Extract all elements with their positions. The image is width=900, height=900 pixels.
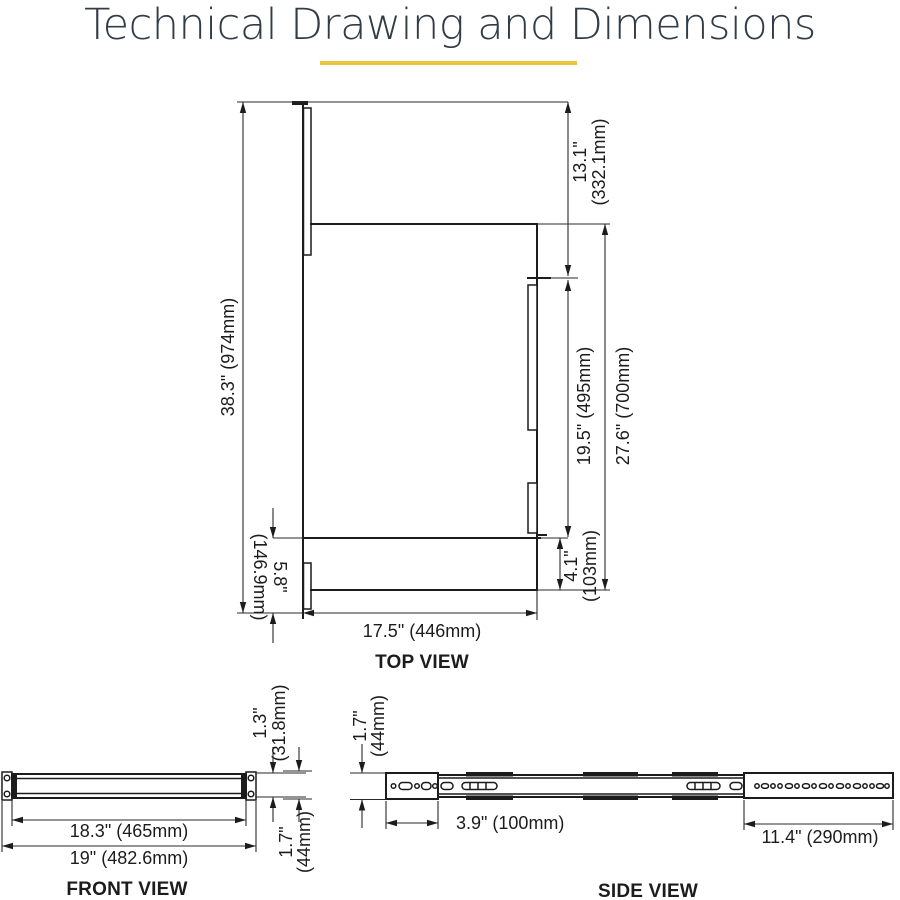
top-view: 38.3" (974mm) 13.1" (332.1mm) 19.5" (495… xyxy=(218,101,633,673)
side-view: 1.7" (44mm) 3.9" (100mm) 11.4" (290mm) S… xyxy=(350,695,893,900)
dim-front-gap-in: 5.8" xyxy=(270,561,290,592)
dim-overall-depth: 38.3" (974mm) xyxy=(218,298,238,416)
top-view-part-outline xyxy=(292,101,550,618)
front-view: 1.3" (31.8mm) 1.7" (44mm) 18.3" (465mm) … xyxy=(2,684,314,900)
top-view-dimensions xyxy=(237,102,610,643)
dim-flange-mm: (31.8mm) xyxy=(269,684,289,761)
rail-band-slots xyxy=(441,783,742,790)
left-ear-hole-top xyxy=(4,775,10,781)
top-view-label: TOP VIEW xyxy=(375,652,469,673)
dim-front-height-in: 1.7" xyxy=(276,826,296,857)
rail-band-dark-segments xyxy=(466,772,718,800)
dim-rail-length: 11.4" (290mm) xyxy=(761,827,878,847)
technical-drawing-page: Technical Drawing and Dimensions xyxy=(0,0,900,900)
front-panel xyxy=(12,774,246,798)
top-view-arrowheads xyxy=(240,102,608,624)
side-left-bracket-holes xyxy=(391,783,437,790)
dim-rear-gap-mm: (103mm) xyxy=(580,530,600,602)
dim-side-height-in: 1.7" xyxy=(350,710,370,741)
side-view-part-outline xyxy=(386,772,893,800)
dim-side-height-mm: (44mm) xyxy=(368,695,388,757)
front-view-label: FRONT VIEW xyxy=(66,879,187,900)
dim-body-width: 18.3" (465mm) xyxy=(70,821,188,841)
drawing-canvas: 38.3" (974mm) 13.1" (332.1mm) 19.5" (495… xyxy=(0,0,900,900)
left-ear-hole-bottom xyxy=(4,791,10,797)
dim-flange-in: 1.3" xyxy=(250,707,270,738)
dim-extension-mm: (332.1mm) xyxy=(589,118,609,205)
dim-top-width: 17.5" (446mm) xyxy=(363,621,481,641)
right-rail-slot-long xyxy=(528,285,537,430)
dim-rear-gap-in: 4.1" xyxy=(561,550,581,581)
side-view-label: SIDE VIEW xyxy=(598,881,698,900)
right-ear-hole-bottom xyxy=(248,791,254,797)
side-right-rail-holes xyxy=(755,784,889,789)
dim-overall-width: 19" (482.6mm) xyxy=(70,848,188,868)
dim-extension-in: 13.1" xyxy=(570,141,590,182)
dim-total-depth: 27.6" (700mm) xyxy=(613,347,633,465)
front-view-part-outline xyxy=(2,772,256,800)
dim-shelf-depth: 19.5" (495mm) xyxy=(574,347,594,465)
left-slide-bracket-upper xyxy=(304,108,312,255)
dim-front-gap-mm: (146.9mm) xyxy=(250,533,270,620)
right-ear-hole-top xyxy=(248,775,254,781)
right-rail-slot-short xyxy=(528,483,537,533)
dim-bracket-length: 3.9" (100mm) xyxy=(456,813,564,833)
left-slide-bracket-lower xyxy=(304,563,312,609)
dim-front-height-mm: (44mm) xyxy=(294,811,314,873)
